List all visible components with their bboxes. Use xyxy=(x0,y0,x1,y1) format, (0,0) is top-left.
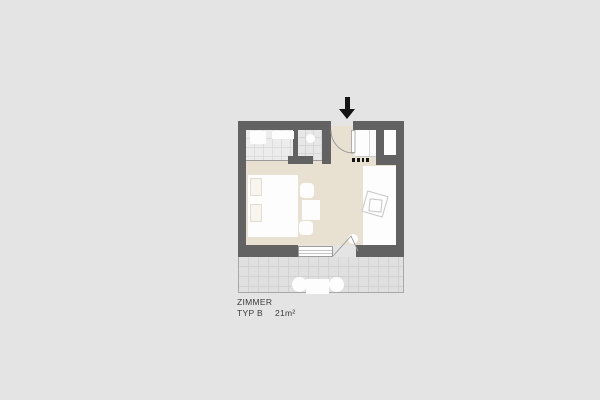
plan-type-text: TYP B xyxy=(237,308,263,318)
wall-bottom-right xyxy=(356,245,404,257)
desk-chair-inner-icon xyxy=(368,198,382,212)
coat-hook-dot xyxy=(352,158,355,162)
bathroom-bottom-wall-segment xyxy=(288,156,313,164)
wall-left xyxy=(238,121,246,257)
bathroom-sink xyxy=(250,131,266,144)
wall-right xyxy=(396,121,404,257)
wall-top-left xyxy=(238,121,331,130)
terrace-table xyxy=(306,279,329,294)
terrace-chair xyxy=(329,277,344,292)
plan-type: TYP B 21m² xyxy=(237,308,357,319)
terrace-chair xyxy=(292,277,307,292)
bathroom-counter xyxy=(272,131,294,139)
window-frame-line xyxy=(299,253,332,254)
shaft xyxy=(384,130,396,156)
table xyxy=(302,200,320,220)
pillow xyxy=(250,178,262,196)
chair xyxy=(300,183,314,198)
wardrobe-divider xyxy=(369,130,370,157)
window-frame-line xyxy=(299,250,332,251)
coat-hook-dot xyxy=(357,158,360,162)
plan-label: ZIMMER TYP B 21m² xyxy=(237,297,357,321)
entrance-arrow-icon xyxy=(345,97,350,109)
plan-title: ZIMMER xyxy=(237,297,357,308)
coat-hooks-icon xyxy=(352,158,369,162)
shower-drain-icon xyxy=(306,134,315,143)
floor-plan: ZIMMER TYP B 21m² xyxy=(0,0,600,400)
pillow xyxy=(250,204,262,222)
stool xyxy=(348,234,358,244)
shaft-left-wall xyxy=(376,130,384,156)
wardrobe-front-line xyxy=(355,156,376,157)
chair xyxy=(299,221,313,235)
coat-hook-dot xyxy=(366,158,369,162)
window xyxy=(298,246,333,257)
wall-bottom-left xyxy=(238,245,298,257)
coat-hook-dot xyxy=(362,158,365,162)
entrance-arrow-head-icon xyxy=(339,109,355,119)
wardrobe xyxy=(355,130,376,157)
plan-area: 21m² xyxy=(275,308,296,319)
